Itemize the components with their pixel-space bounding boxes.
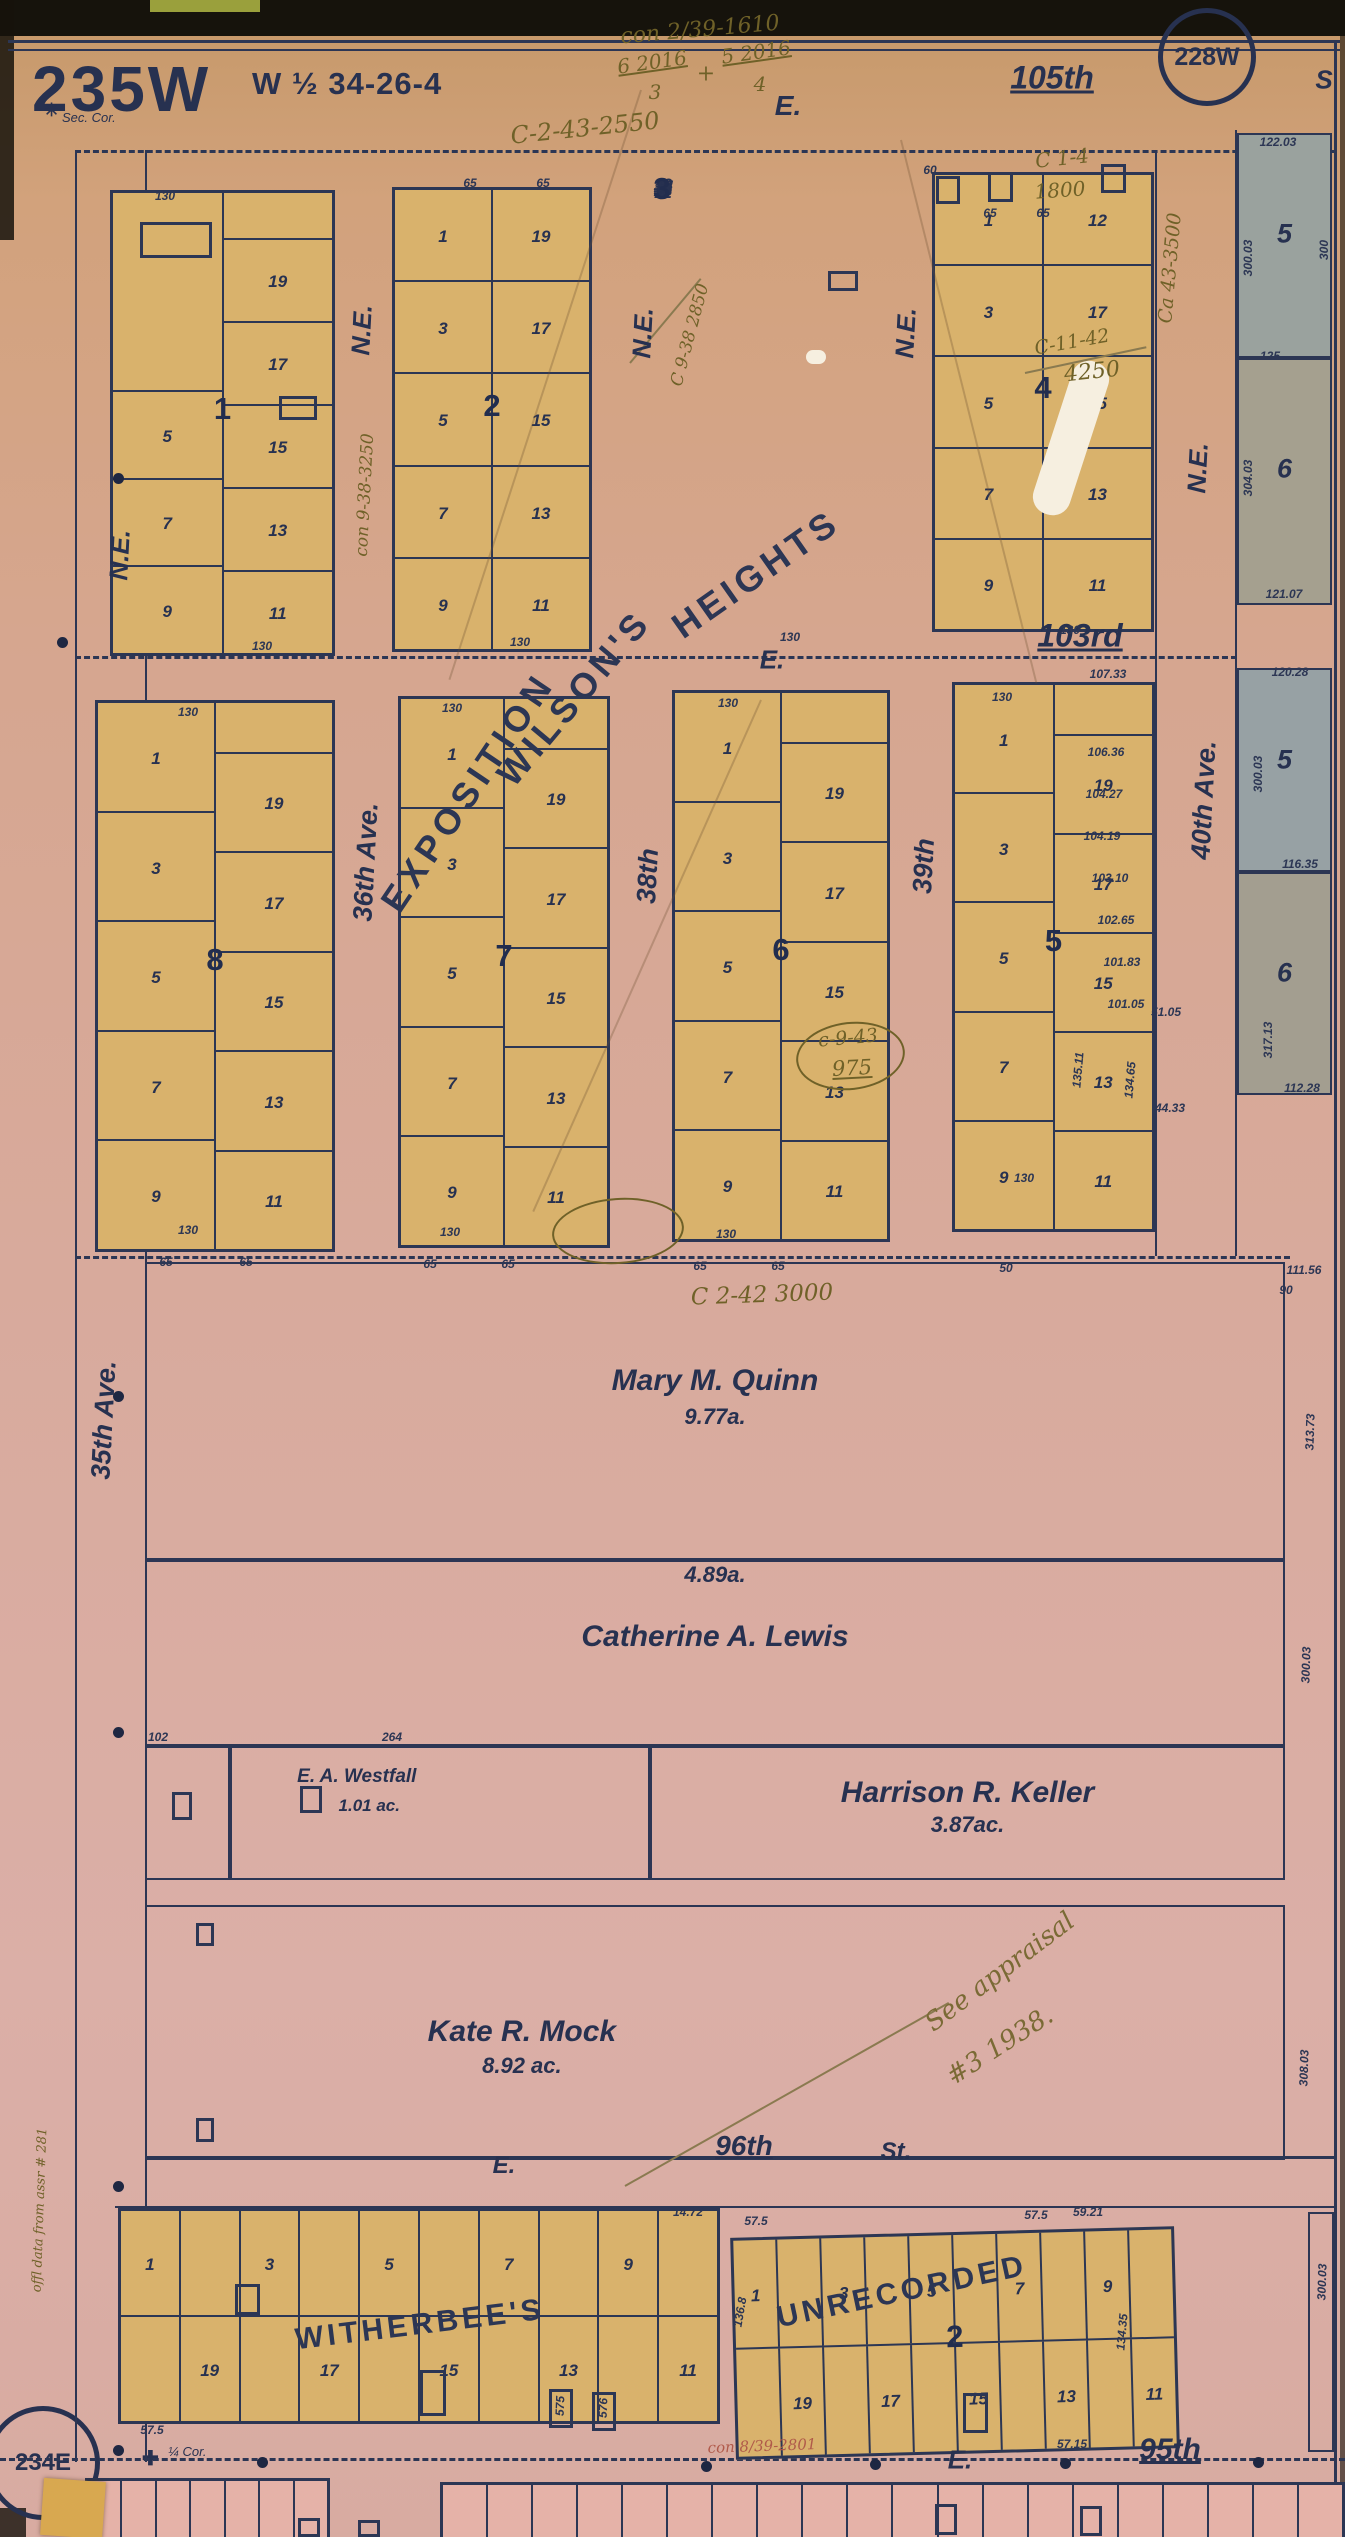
lot-cell: 9: [675, 1129, 780, 1239]
dimension-label: 130: [1060, 623, 1080, 637]
dimension-label: 90: [1279, 1283, 1292, 1297]
lot-number: 17: [532, 319, 551, 339]
dimension-label: 130: [442, 701, 462, 715]
lot-row: [443, 2485, 1342, 2537]
dimension-label: 107.33: [1090, 667, 1127, 681]
lot-number: 19: [265, 794, 284, 814]
survey-monument-dot: [1060, 2458, 1071, 2469]
lot-cell: 13: [224, 487, 333, 570]
lot-cell: [120, 2481, 154, 2537]
adjoining-sheet-number: 228W: [1174, 43, 1239, 72]
parcel-acreage: 3.87ac.: [931, 1812, 1004, 1838]
lot-number: 7: [447, 1074, 456, 1094]
lot-cell: [189, 2481, 223, 2537]
lot-cell: 5: [395, 372, 491, 464]
street-name-label-vertical: N.E.: [345, 304, 379, 356]
block-number: 7: [495, 938, 512, 974]
lot-cell: 11: [1055, 1130, 1153, 1229]
street-name-label: S: [1315, 65, 1332, 96]
lot-cell: 19: [179, 2317, 239, 2421]
handwritten-annotation: 3: [649, 80, 662, 104]
lot-cell: 11: [1044, 538, 1151, 629]
street-name-label-vertical: N.E.: [626, 307, 660, 359]
survey-monument-dot: [113, 2181, 124, 2192]
handwritten-annotation: 4: [754, 72, 767, 96]
dimension-label: 120.28: [1272, 665, 1309, 679]
plat-south-boundary-dashed: [75, 1256, 1290, 1259]
lot-column: 579: [113, 193, 222, 653]
block-number: 4: [1034, 370, 1051, 406]
lot-cell: [239, 2317, 299, 2421]
lot-cell: 11: [224, 570, 333, 653]
tract-number: 5: [1277, 745, 1292, 776]
lot-cell: 7: [675, 1020, 780, 1130]
block-number: 2: [483, 388, 500, 424]
survey-monument-dot: [1253, 2457, 1264, 2468]
handwritten-annotation: 975: [831, 1055, 872, 1081]
building-footprint: [935, 2504, 957, 2535]
dimension-label: 130: [992, 690, 1012, 704]
dimension-label: 106.36: [1088, 745, 1125, 759]
lot-cell: [1252, 2485, 1297, 2537]
lot-cell: 5: [935, 355, 1042, 446]
lot-number: 11: [547, 1188, 565, 1208]
lot-cell: [1162, 2485, 1207, 2537]
building-footprint: [988, 172, 1013, 202]
dimension-label: 101.05: [1108, 997, 1145, 1011]
dimension-label: 101.83: [1104, 955, 1141, 969]
dimension-label: 300.03: [1241, 240, 1255, 277]
lot-cell: [1039, 2232, 1086, 2340]
plat-map-sheet: 235W W ½ 34-26-4 228W 234E ✳ Sec. Cor. ✚…: [0, 0, 1345, 2537]
handwritten-annotation: C 9-38 2850: [667, 282, 714, 389]
building-footprint: [1080, 2506, 1102, 2536]
dimension-label: 111.56: [1287, 1263, 1322, 1277]
lot-cell: 1: [395, 190, 491, 280]
dimension-label: 57.5: [1024, 2208, 1047, 2222]
lot-cell: 7: [955, 1011, 1053, 1120]
building-footprint: [279, 396, 317, 420]
lot-number: 9: [999, 1168, 1008, 1188]
dimension-label: 130: [178, 705, 198, 719]
lot-number: 9: [984, 576, 993, 596]
handwritten-annotation: offl data from assr # 281: [30, 2128, 51, 2293]
building-footprint: [235, 2284, 260, 2315]
lot-cell: [258, 2481, 292, 2537]
lot-cell: 3: [955, 792, 1053, 901]
street-line-35th-west: [75, 150, 77, 2462]
photo-border-left: [0, 0, 14, 240]
lot-number: 7: [163, 514, 172, 534]
dimension-label: 65: [501, 1257, 514, 1271]
building-footprint: [196, 2118, 214, 2142]
dimension-label: 121.07: [1266, 587, 1303, 601]
building-footprint: [963, 2393, 988, 2433]
lot-number: 1: [723, 739, 732, 759]
lot-cell: 19: [782, 742, 887, 841]
building-footprint: [420, 2370, 446, 2416]
lot-number: 5: [984, 394, 993, 414]
lot-cell: 13: [505, 1046, 607, 1145]
index-tab-sticker: [40, 2478, 106, 2537]
lot-cell: 15: [1055, 932, 1153, 1031]
dimension-label: 125: [1260, 349, 1280, 363]
lot-number: 5: [163, 427, 172, 447]
survey-monument-dot: [113, 1727, 124, 1738]
dimension-label: 130: [718, 696, 738, 710]
lot-number: 9: [624, 2255, 633, 2275]
block-1: 57919171513111: [110, 190, 335, 656]
parcel-acreage: 8.92 ac.: [482, 2053, 562, 2079]
lot-number: 5: [999, 949, 1008, 969]
lot-column: 13579: [935, 175, 1042, 629]
handwritten-annotation: C 2-42 3000: [690, 1280, 833, 1311]
lot-cell: [216, 703, 332, 752]
building-footprint: [196, 1923, 214, 1946]
lot-cell: 17: [216, 851, 332, 950]
lot-cell: 9: [955, 1120, 1053, 1229]
lot-number: 9: [163, 602, 172, 622]
block-6: 1357919171513116: [672, 690, 890, 1242]
lot-column: 13579: [955, 685, 1053, 1229]
lot-number: 3: [723, 849, 732, 869]
building-footprint: [140, 222, 212, 258]
dimension-label: 104.27: [1086, 787, 1123, 801]
lot-cell: [621, 2485, 666, 2537]
lot-cell: 15: [505, 947, 607, 1046]
street-name-label-vertical: N.E.: [889, 307, 923, 359]
lot-cell: [982, 2485, 1027, 2537]
lot-cell: 7: [395, 465, 491, 557]
lot-cell: 11: [1130, 2338, 1177, 2446]
handwritten-annotation: Ca 43-3500: [1154, 212, 1186, 324]
lot-cell: 19: [493, 190, 589, 280]
lot-cell: 1: [121, 2211, 179, 2315]
parcel-owner-name: Catherine A. Lewis: [581, 1620, 848, 1654]
lot-cell: 11: [493, 557, 589, 649]
lot-cell: [418, 2211, 478, 2315]
lot-number: 5: [447, 964, 456, 984]
parcel-owner-name: Harrison R. Keller: [841, 1776, 1094, 1810]
lot-cell: [998, 2342, 1045, 2450]
street-name-label-vertical: 35th Ave.: [85, 1360, 122, 1481]
lot-cell: [1117, 2485, 1162, 2537]
block-8: 1357919171513118: [95, 700, 335, 1252]
whiteout-mark-small: [806, 350, 826, 364]
lot-row: 13579: [121, 2211, 717, 2315]
building-footprint: [300, 1786, 322, 1813]
lot-number: 1: [751, 2286, 761, 2306]
lot-cell: [298, 2211, 358, 2315]
lot-cell: 11: [782, 1140, 887, 1239]
south-strip-west: [85, 2478, 330, 2537]
lot-cell: [576, 2485, 621, 2537]
lot-cell: 7: [401, 1026, 503, 1136]
dimension-label: 130: [1014, 1171, 1034, 1185]
lot-number: 17: [547, 890, 566, 910]
lot-number: 7: [151, 1078, 160, 1098]
lot-number: 13: [1088, 485, 1107, 505]
lot-cell: [657, 2211, 717, 2315]
parcel-lewis: Catherine A. Lewis 4.89a.: [145, 1560, 1285, 1746]
lot-cell: 15: [493, 372, 589, 464]
lot-cell: [224, 193, 333, 238]
parcel-owner-name: E. A. Westfall: [297, 1766, 416, 1788]
street-name-label-vertical: 38th: [631, 847, 665, 904]
lot-cell: [443, 2485, 486, 2537]
lot-number: 1: [999, 731, 1008, 751]
dimension-label: 130: [252, 639, 272, 653]
photo-border-right: [1340, 0, 1345, 2537]
dimension-label: 308.03: [1296, 2049, 1311, 2086]
street-name-label: E.: [493, 2152, 516, 2180]
lot-number: 19: [547, 790, 566, 810]
lot-cell: 9: [935, 538, 1042, 629]
lot-number: 11: [269, 604, 287, 624]
building-footprint: [592, 2392, 616, 2431]
street-line-103rd: [75, 656, 1237, 659]
street-name-label-vertical: 40th Ave.: [1185, 740, 1222, 861]
lot-cell: [121, 2317, 179, 2421]
dimension-label: 50: [999, 1261, 1012, 1275]
lot-number: 7: [504, 2255, 513, 2275]
lot-number: 1: [151, 749, 160, 769]
building-footprint: [298, 2518, 320, 2537]
handwritten-annotation: con 8/39-2801: [707, 2435, 816, 2457]
lot-number: 5: [723, 958, 732, 978]
lot-number: 11: [1094, 1172, 1112, 1192]
lot-cell: 1: [98, 703, 214, 811]
handwritten-annotation: C-2-43-2550: [509, 106, 661, 149]
dimension-label: 130: [440, 1225, 460, 1239]
lot-number: 19: [268, 272, 287, 292]
block-number: 3: [653, 171, 670, 207]
narrow-east-parcel: [1308, 2212, 1334, 2452]
parcel-acreage: 1.01 ac.: [339, 1796, 400, 1816]
street-name-label: E.: [760, 645, 785, 676]
lot-cell: [486, 2485, 531, 2537]
lot-number: 13: [559, 2361, 578, 2381]
lot-number: 15: [1094, 974, 1113, 994]
lot-cell: [782, 693, 887, 742]
block-number: 5: [1045, 923, 1062, 959]
building-footprint: [1101, 164, 1126, 193]
parcel-westfall: E. A. Westfall 1.01 ac.: [230, 1746, 650, 1880]
dimension-label: 300.03: [1298, 1646, 1313, 1683]
lot-cell: [155, 2481, 189, 2537]
dimension-label: 130: [780, 630, 800, 644]
adjoining-sheet-tag-top: 228W: [1158, 8, 1256, 106]
street-name-label-vertical: 39th: [907, 837, 941, 894]
lot-number: 11: [826, 1182, 844, 1202]
block-2: 1357919171513112: [392, 187, 592, 652]
lot-cell: [1207, 2485, 1252, 2537]
section-corner-label: Sec. Cor.: [62, 110, 116, 125]
parcel-keller: Harrison R. Keller 3.87ac.: [650, 1746, 1285, 1880]
dimension-label: 65: [771, 1259, 784, 1273]
lot-number: 11: [1145, 2384, 1163, 2404]
dimension-label: 130: [716, 1227, 736, 1241]
dimension-label: 116.35: [1282, 857, 1318, 871]
street-line-105th: [75, 150, 1337, 153]
block-number: 1: [214, 391, 231, 427]
lot-cell: [846, 2485, 891, 2537]
dimension-label: 14.72: [673, 2205, 703, 2219]
lot-cell: [1127, 2229, 1174, 2337]
dimension-label: 317.13: [1261, 1022, 1275, 1059]
dimension-label: 130: [178, 1223, 198, 1237]
lot-number: 3: [151, 859, 160, 879]
building-footprint: [358, 2520, 380, 2537]
dimension-label: 59.21: [1073, 2205, 1103, 2219]
lot-cell: 1: [733, 2240, 778, 2348]
lot-cell: [538, 2211, 598, 2315]
block-3: 1357919171513113: [658, 182, 666, 196]
lot-cell: [179, 2211, 239, 2315]
lot-number: 5: [384, 2255, 393, 2275]
lot-number: 15: [825, 983, 844, 1003]
lot-cell: [711, 2485, 756, 2537]
lot-number: 17: [265, 894, 284, 914]
lot-cell: [756, 2485, 801, 2537]
lot-number: 7: [999, 1058, 1008, 1078]
lot-number: 19: [825, 784, 844, 804]
lot-number: 7: [438, 504, 447, 524]
lot-number: 19: [793, 2393, 812, 2413]
lot-number: 13: [532, 504, 551, 524]
lot-number: 3: [265, 2255, 274, 2275]
lot-number: 15: [268, 438, 287, 458]
lot-number: 17: [1088, 303, 1107, 323]
parcel-owner-name: Mary M. Quinn: [612, 1364, 819, 1398]
lot-number: 9: [1103, 2276, 1113, 2296]
dimension-label: 313.73: [1302, 1413, 1317, 1450]
street-name-label: E.: [948, 2445, 973, 2476]
building-footprint: [828, 271, 858, 291]
lot-cell: [1027, 2485, 1072, 2537]
lot-cell: 7: [98, 1030, 214, 1140]
unrecorded-block: 1357919171513112: [730, 2226, 1180, 2460]
lot-cell: 5: [98, 920, 214, 1030]
building-footprint: [549, 2389, 573, 2428]
lot-cell: 9: [597, 2211, 657, 2315]
building-footprint: [936, 176, 960, 204]
dimension-label: 51.05: [1151, 1005, 1181, 1019]
parcel-acreage: 4.89a.: [684, 1562, 745, 1588]
building-footprint: [172, 1792, 192, 1820]
lot-number: 5: [438, 411, 447, 431]
lot-column: 1917151311: [222, 193, 333, 653]
lot-cell: 5: [113, 390, 222, 478]
block-number: 2: [946, 2318, 964, 2354]
dimension-label: 103.10: [1092, 871, 1129, 885]
dimension-label: 122.03: [1260, 135, 1297, 149]
sheet-border-line-right: [1334, 40, 1337, 2537]
lot-cell: 17: [782, 841, 887, 940]
dimension-label: 65: [983, 206, 996, 220]
lot-cell: 5: [675, 910, 780, 1020]
lot-cell: 13: [493, 465, 589, 557]
lot-cell: 3: [98, 811, 214, 921]
lot-cell: 9: [395, 557, 491, 649]
tract-number: 5: [1277, 219, 1292, 250]
dimension-label: 44.33: [1155, 1101, 1185, 1115]
lot-number: 13: [268, 521, 287, 541]
lot-number: 19: [200, 2361, 219, 2381]
lot-column: 1917151311: [491, 190, 589, 649]
survey-monument-dot: [57, 637, 68, 648]
lot-number: 9: [723, 1177, 732, 1197]
quarter-corner-label: ¼ Cor.: [168, 2444, 207, 2459]
street-name-label: 105th: [1010, 60, 1094, 97]
dimension-label: 65: [1036, 206, 1049, 220]
lot-number: 5: [151, 968, 160, 988]
parcel-acreage: 9.77a.: [684, 1404, 745, 1430]
dimension-label: 304.03: [1241, 460, 1255, 497]
lot-number: 15: [547, 989, 566, 1009]
lot-cell: [822, 2346, 869, 2454]
dimension-label: 300: [1317, 240, 1331, 260]
dimension-label: 104.19: [1084, 829, 1121, 843]
lot-cell: 19: [224, 238, 333, 321]
survey-monument-dot: [113, 2445, 124, 2456]
survey-monument-dot: [257, 2457, 268, 2468]
lot-number: 11: [1089, 576, 1107, 596]
sheet-legal-description: W ½ 34-26-4: [252, 66, 442, 102]
lot-cell: 11: [216, 1150, 332, 1249]
lot-number: 1: [438, 227, 447, 247]
street-name-label: 96th: [715, 2130, 773, 2162]
block-number: 6: [772, 932, 789, 968]
lot-column: 1917151311: [780, 693, 887, 1239]
dimension-label: 65: [693, 1259, 706, 1273]
dimension-label: 65: [463, 176, 476, 190]
survey-monument-dot: [113, 473, 124, 484]
lot-cell: 5: [401, 916, 503, 1026]
lot-row: [88, 2481, 327, 2537]
lot-number: 13: [1057, 2386, 1076, 2406]
lot-number: 17: [881, 2391, 900, 2411]
handwritten-annotation: C 1-4: [1034, 143, 1090, 173]
lot-number: 17: [825, 884, 844, 904]
lot-cell: [531, 2485, 576, 2537]
handwritten-annotation: +: [697, 62, 715, 87]
handwritten-annotation: 1800: [1034, 176, 1086, 203]
survey-monument-dot: [701, 2461, 712, 2472]
dimension-label: 60: [923, 163, 936, 177]
lot-number: 9: [151, 1187, 160, 1207]
lot-cell: 3: [395, 280, 491, 372]
street-name-label-vertical: 36th Ave.: [347, 802, 384, 923]
lot-number: 17: [268, 355, 287, 375]
survey-monument-dot: [113, 1391, 124, 1402]
lot-cell: 17: [505, 847, 607, 946]
lot-cell: [1055, 685, 1153, 734]
lot-cell: [801, 2485, 846, 2537]
lot-column: 1917151311: [214, 703, 332, 1249]
dimension-label: 300.03: [1314, 2263, 1329, 2300]
lot-number: 3: [438, 319, 447, 339]
lot-number: 19: [532, 227, 551, 247]
street-name-label-vertical: N.E.: [1181, 442, 1215, 494]
lot-number: 13: [547, 1089, 566, 1109]
handwritten-annotation: con 9-38-3250: [352, 433, 378, 557]
tract-6-south: 6: [1237, 872, 1332, 1095]
dimension-label: 65: [423, 1257, 436, 1271]
dimension-label: 130: [510, 635, 530, 649]
lot-cell: [910, 2344, 957, 2452]
dimension-label: 57.5: [140, 2423, 163, 2437]
